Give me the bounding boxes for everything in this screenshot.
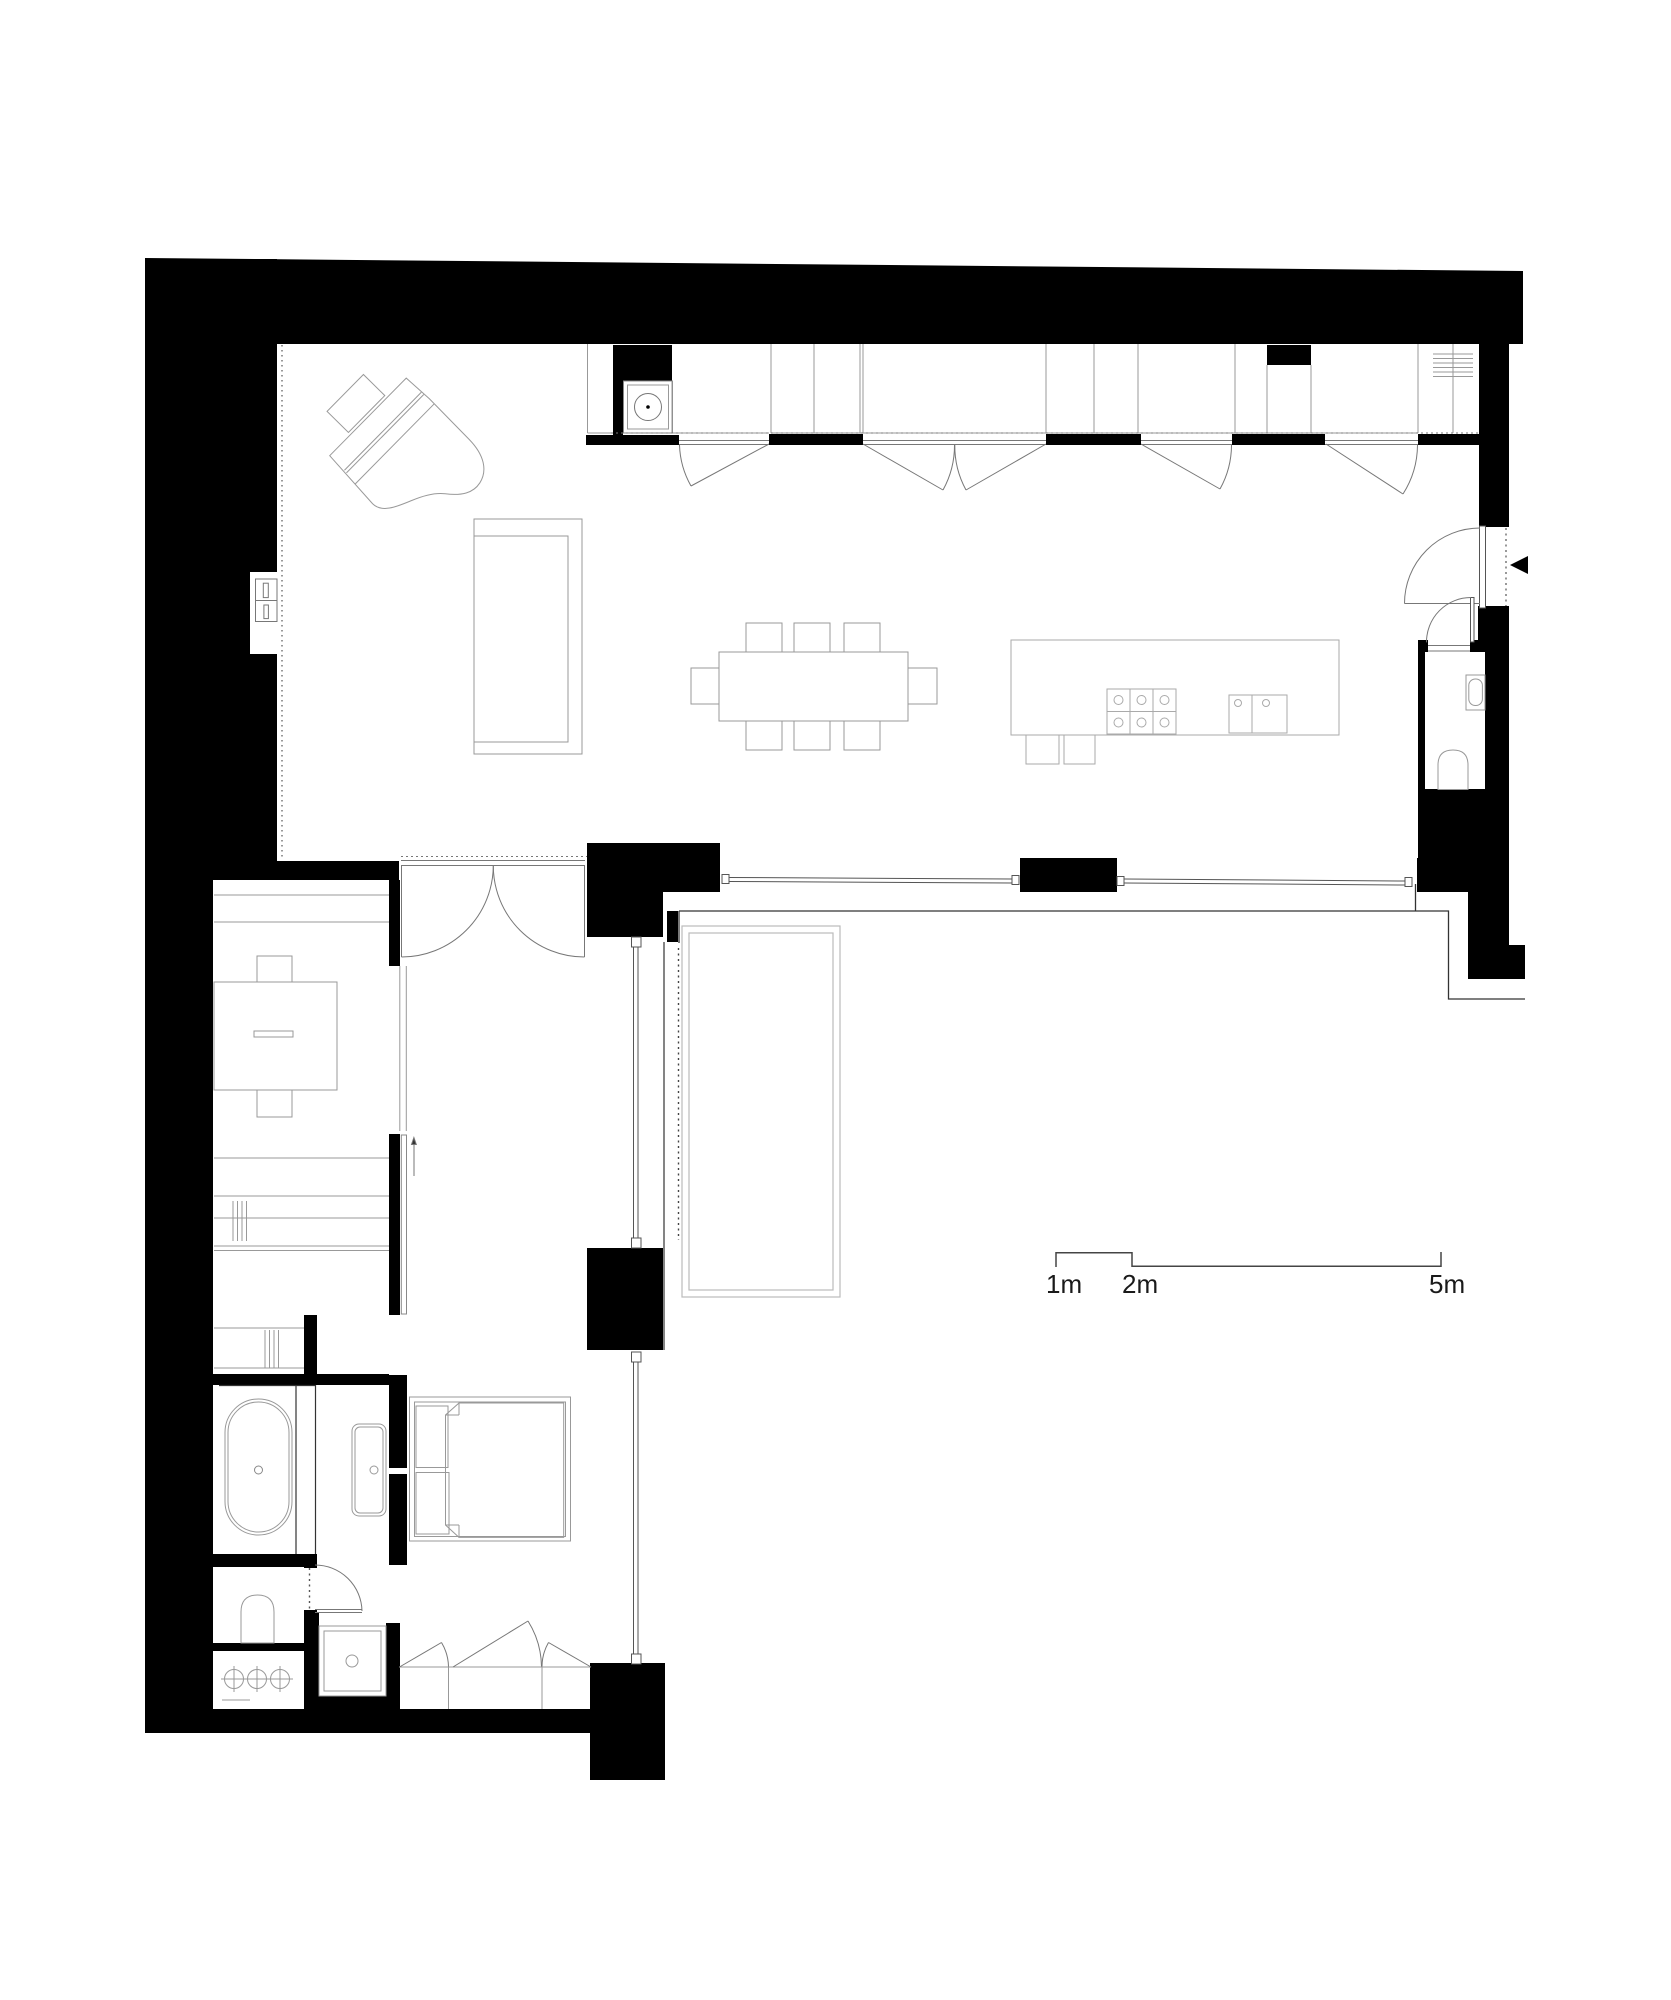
svg-text:2m: 2m: [1122, 1269, 1158, 1299]
svg-text:1m: 1m: [1046, 1269, 1082, 1299]
svg-text:5m: 5m: [1429, 1269, 1465, 1299]
